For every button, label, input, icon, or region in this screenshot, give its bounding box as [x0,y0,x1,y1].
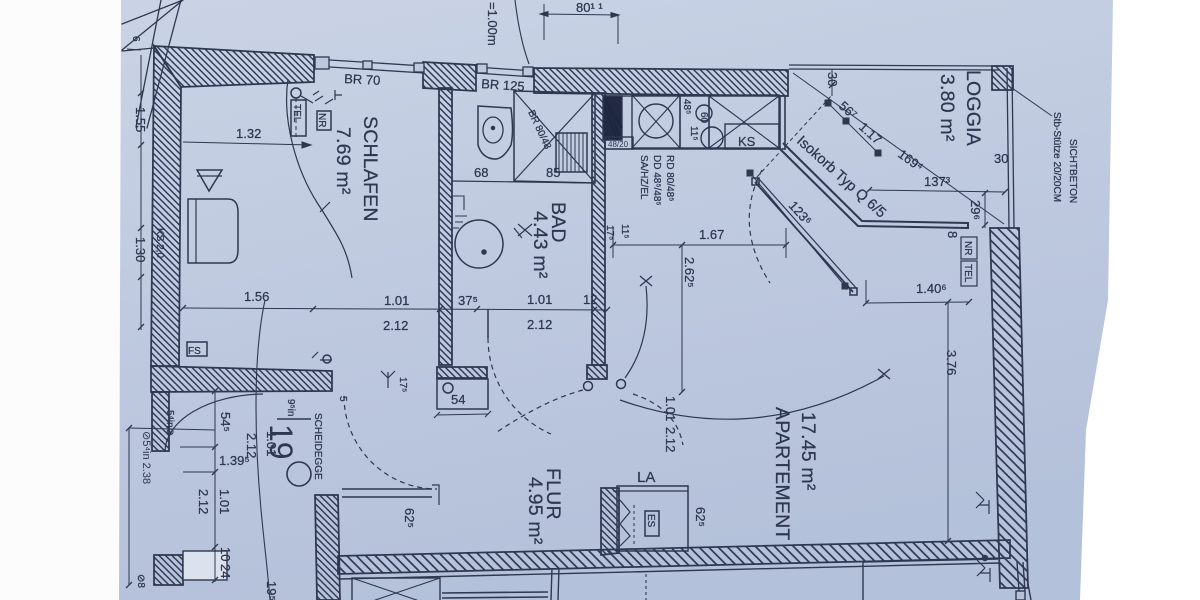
svg-text:54: 54 [451,392,465,407]
svg-text:85: 85 [546,165,560,180]
svg-text:2.12: 2.12 [527,317,552,332]
svg-text:TEL: TEL [962,264,973,283]
svg-text:BR 125: BR 125 [481,76,525,94]
svg-text:2.12: 2.12 [663,427,678,452]
svg-text:60: 60 [698,112,709,124]
svg-text:1.39⁵: 1.39⁵ [219,453,250,468]
svg-text:Stb-Stütze 20/20CM: Stb-Stütze 20/20CM [1051,112,1062,202]
svg-text:30: 30 [825,72,840,86]
svg-text:FS: FS [188,346,201,357]
svg-text:1.01: 1.01 [217,489,232,514]
svg-text:62⁵: 62⁵ [402,508,417,528]
svg-text:=1.00m: =1.00m [485,2,500,46]
svg-text:SICHTBETON: SICHTBETON [1067,139,1078,203]
svg-text:LA: LA [637,469,655,486]
svg-text:1.67: 1.67 [699,227,724,242]
svg-text:DD 48⁵/48⁵: DD 48⁵/48⁵ [651,155,662,206]
svg-text:1.01: 1.01 [663,396,678,421]
svg-text:17⁵: 17⁵ [397,377,408,392]
svg-text:SA/HZ/EL: SA/HZ/EL [638,155,649,200]
svg-text:48/20: 48/20 [608,140,629,149]
svg-text:2.12: 2.12 [196,489,211,514]
svg-text:19⁵: 19⁵ [264,581,279,600]
svg-text:11⁵: 11⁵ [619,224,630,239]
svg-text:1.30: 1.30 [133,237,148,262]
svg-text:12: 12 [583,292,597,307]
svg-text:TEL: TEL [291,104,302,123]
svg-text:5: 5 [337,396,348,402]
svg-text:ES: ES [645,514,656,528]
svg-text:68: 68 [474,165,488,180]
svg-text:137³: 137³ [924,174,951,189]
svg-text:2.62⁵: 2.62⁵ [682,257,697,288]
svg-text:⊘8: ⊘8 [135,574,146,588]
svg-text:8: 8 [945,231,960,238]
svg-text:NR: NR [316,113,327,127]
svg-text:10: 10 [218,547,233,561]
svg-text:1.01: 1.01 [384,293,409,308]
svg-text:3.76: 3.76 [944,350,959,375]
svg-text:1.56: 1.56 [244,289,269,304]
svg-text:11⁵: 11⁵ [688,126,699,141]
svg-text:SCHLAFEN: SCHLAFEN [359,116,381,222]
svg-text:⊘5⁴in 2.38: ⊘5⁴in 2.38 [140,431,152,484]
svg-text:17⁵: 17⁵ [604,225,615,240]
svg-text:5⁴in⊘: 5⁴in⊘ [164,410,175,436]
svg-text:KS 2,0: KS 2,0 [154,228,165,258]
svg-text:APARTEMENT: APARTEMENT [771,407,793,540]
svg-text:80¹ ¹: 80¹ ¹ [576,0,603,15]
svg-text:48⁵: 48⁵ [681,99,692,114]
svg-text:LOGGIA: LOGGIA [962,70,984,146]
svg-text:RD 80/48⁵: RD 80/48⁵ [664,155,675,201]
svg-text:54⁵: 54⁵ [218,412,233,432]
svg-text:19: 19 [263,424,299,460]
svg-text:SCHEIDEGGE: SCHEIDEGGE [312,413,323,480]
svg-text:1.32: 1.32 [236,126,261,141]
svg-text:3.80 m²: 3.80 m² [936,74,958,142]
svg-text:BR 70: BR 70 [344,71,381,88]
svg-text:7.69 m²: 7.69 m² [332,127,354,195]
svg-text:1.01: 1.01 [527,292,552,307]
svg-text:NR: NR [962,241,973,255]
svg-text:4.43 m²: 4.43 m² [529,211,551,279]
svg-text:30: 30 [994,151,1008,166]
svg-text:4.95 m²: 4.95 m² [524,477,546,545]
svg-text:29⁶: 29⁶ [968,200,983,220]
svg-text:2.12: 2.12 [383,318,408,333]
svg-text:37⁵: 37⁵ [458,293,478,308]
svg-text:9⁵in: 9⁵in [285,399,296,417]
svg-text:KS: KS [738,134,756,149]
svg-text:17.45 m²: 17.45 m² [797,412,819,491]
svg-text:1.40⁶: 1.40⁶ [916,281,947,296]
svg-text:6: 6 [130,36,141,42]
svg-text:62⁵: 62⁵ [693,507,708,527]
svg-text:1.55: 1.55 [133,107,148,132]
svg-text:24: 24 [218,564,233,578]
